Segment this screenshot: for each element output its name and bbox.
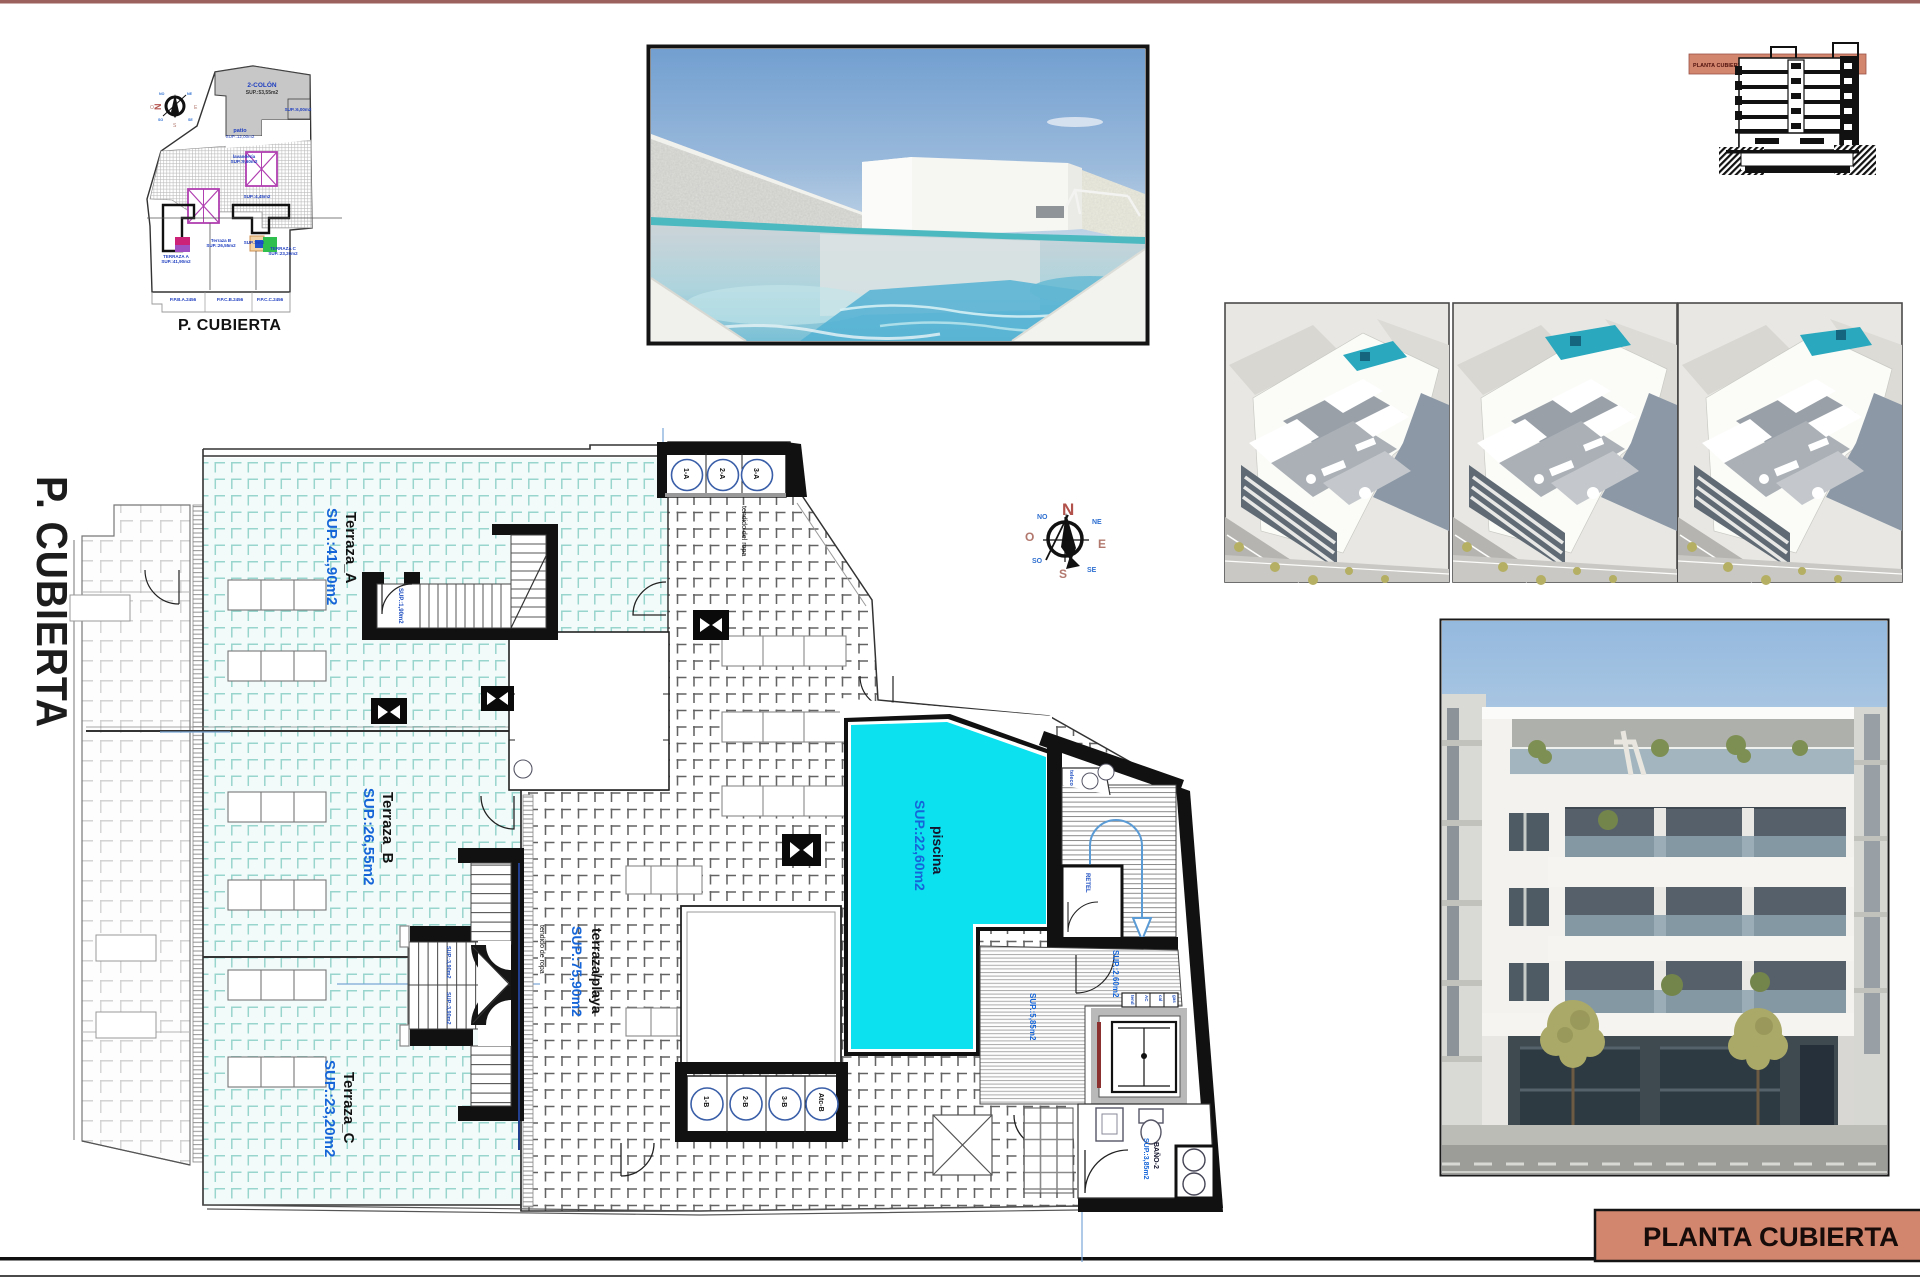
svg-text:E: E — [1098, 537, 1106, 551]
svg-text:SUP.:5,85m2: SUP.:5,85m2 — [1028, 993, 1037, 1041]
svg-text:SUP.:9,60m2: SUP.:9,60m2 — [231, 159, 258, 164]
svg-text:SUP.:12,00m2: SUP.:12,00m2 — [226, 134, 255, 139]
svg-text:NE: NE — [187, 92, 193, 96]
svg-text:terraza/playa: terraza/playa — [589, 928, 605, 1014]
svg-text:cal: cal — [1158, 995, 1163, 1001]
svg-text:SO: SO — [158, 118, 163, 122]
svg-text:SO: SO — [1032, 558, 1043, 565]
svg-text:P. CUBIERTA: P. CUBIERTA — [178, 317, 281, 334]
svg-text:SUP.:75,90m2: SUP.:75,90m2 — [569, 926, 585, 1017]
svg-text:O: O — [150, 105, 154, 111]
svg-text:P.P.C.B.2456: P.P.C.B.2456 — [217, 297, 244, 302]
svg-text:tend: tend — [1130, 995, 1135, 1005]
svg-text:SUP.:4,45m2: SUP.:4,45m2 — [244, 194, 271, 199]
svg-text:SUP.:2,60m2: SUP.:2,60m2 — [1111, 950, 1120, 998]
svg-text:1-A: 1-A — [682, 468, 689, 479]
svg-text:Terraza_B: Terraza_B — [379, 792, 396, 864]
svg-text:SUP.:41,90m2: SUP.:41,90m2 — [161, 259, 191, 264]
svg-text:SUP.:1,90m2: SUP.:1,90m2 — [397, 588, 403, 624]
svg-text:SUP.:53,55m2: SUP.:53,55m2 — [246, 90, 279, 96]
svg-text:SE: SE — [188, 118, 193, 122]
svg-text:RETEL: RETEL — [1084, 873, 1090, 893]
svg-text:N: N — [153, 104, 163, 111]
svg-text:Terraza_A: Terraza_A — [342, 512, 359, 584]
svg-text:PLANTA CUBIERTA: PLANTA CUBIERTA — [1643, 1222, 1899, 1252]
svg-text:SUP.:6,00m2: SUP.:6,00m2 — [285, 107, 312, 112]
svg-text:NO: NO — [1037, 514, 1048, 521]
svg-text:SUP.:3,90m2: SUP.:3,90m2 — [445, 992, 451, 1025]
svg-text:2-COLÓN: 2-COLÓN — [247, 80, 277, 89]
svg-text:BAÑO-2: BAÑO-2 — [1152, 1142, 1161, 1169]
svg-text:gas: gas — [1172, 995, 1177, 1003]
svg-text:SUP.:22,60m2: SUP.:22,60m2 — [912, 800, 928, 891]
svg-text:1-B: 1-B — [702, 1096, 709, 1107]
svg-text:SUP.:3,85m2: SUP.:3,85m2 — [1142, 1138, 1149, 1180]
svg-text:tendido de ropa: tendido de ropa — [538, 925, 545, 974]
svg-text:P.P.B.A.2456: P.P.B.A.2456 — [170, 297, 197, 302]
svg-text:SUP.:3,90m2: SUP.:3,90m2 — [445, 946, 451, 979]
svg-text:NE: NE — [1092, 519, 1102, 526]
svg-text:N: N — [1062, 500, 1074, 519]
svg-text:SUP.:9m2: SUP.:9m2 — [244, 240, 265, 245]
svg-text:S: S — [1059, 567, 1067, 581]
svg-text:SUP.:41,90m2: SUP.:41,90m2 — [323, 508, 340, 605]
svg-text:SE: SE — [1087, 567, 1097, 574]
svg-text:AC: AC — [1144, 995, 1149, 1002]
svg-text:3-A: 3-A — [752, 468, 759, 479]
svg-text:Atc-B: Atc-B — [817, 1093, 824, 1112]
svg-text:SUP.:23,20m2: SUP.:23,20m2 — [268, 251, 298, 256]
svg-text:SUP.:26,55m2: SUP.:26,55m2 — [206, 243, 236, 248]
svg-text:teleco: teleco — [1068, 770, 1074, 787]
svg-text:2-B: 2-B — [741, 1096, 748, 1107]
svg-text:P.P.C.C.2456: P.P.C.C.2456 — [257, 297, 284, 302]
svg-text:tendido del ropa: tendido del ropa — [740, 506, 747, 556]
svg-text:P. CUBIERTA: P. CUBIERTA — [27, 476, 76, 728]
svg-text:SUP.:23,20m2: SUP.:23,20m2 — [321, 1060, 338, 1157]
svg-text:SUP.:26,55m2: SUP.:26,55m2 — [360, 788, 377, 885]
svg-text:NO: NO — [159, 92, 165, 96]
svg-text:2-A: 2-A — [718, 468, 725, 479]
svg-text:Terraza_C: Terraza_C — [340, 1072, 357, 1144]
svg-text:piscina: piscina — [930, 826, 946, 874]
svg-text:O: O — [1025, 530, 1034, 544]
svg-text:3-B: 3-B — [780, 1096, 787, 1107]
